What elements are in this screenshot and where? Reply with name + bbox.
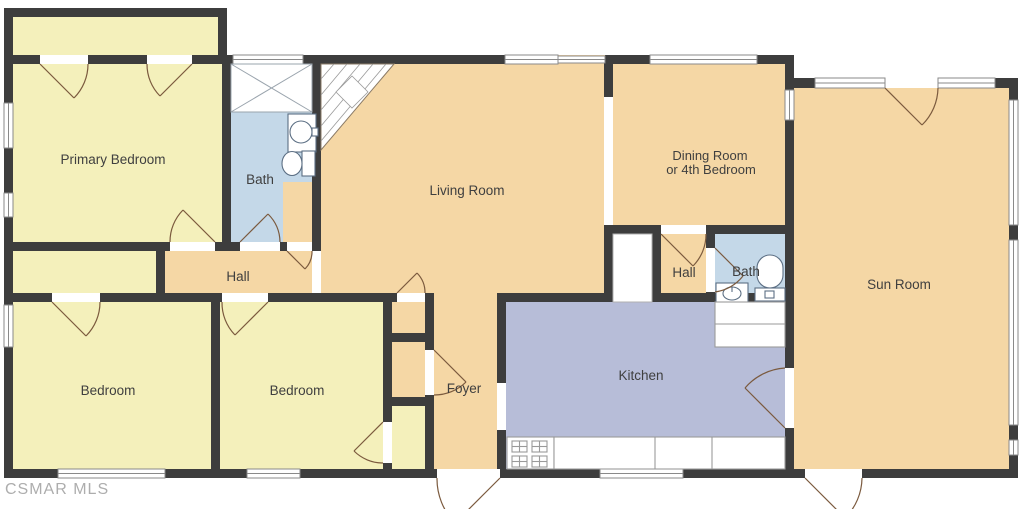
label-living-room: Living Room <box>429 183 504 198</box>
label-sun-room: Sun Room <box>867 277 931 292</box>
label-hall-left: Hall <box>226 269 249 284</box>
dining-room-floor <box>604 55 794 234</box>
door-front-entry <box>437 478 500 509</box>
label-bedroom-left: Bedroom <box>81 383 136 398</box>
floor-plan-page: Primary Bedroom Bath Living Room Dining … <box>0 0 1024 509</box>
watermark-text: CSMAR MLS <box>5 481 109 498</box>
label-bath-left: Bath <box>246 172 274 187</box>
label-dining-line1: Dining Room <box>672 148 747 163</box>
label-bedroom-center: Bedroom <box>270 383 325 398</box>
label-foyer: Foyer <box>447 381 482 396</box>
label-hall-right: Hall <box>672 265 695 280</box>
linen-closet <box>231 64 312 112</box>
sink-left-icon <box>288 114 318 152</box>
kitchen-counter-right <box>715 302 785 347</box>
stove-icon <box>507 437 554 469</box>
kitchen-counter <box>554 437 785 469</box>
label-kitchen: Kitchen <box>618 368 663 383</box>
label-dining-line2: or 4th Bedroom <box>666 162 756 177</box>
label-bath-right: Bath <box>732 264 760 279</box>
floor-plan-svg: Primary Bedroom Bath Living Room Dining … <box>0 0 1024 509</box>
door-sunroom-exit <box>805 478 862 509</box>
closet-right-white <box>613 234 652 302</box>
label-primary-bedroom: Primary Bedroom <box>60 152 165 167</box>
toilet-left-icon <box>282 151 315 176</box>
